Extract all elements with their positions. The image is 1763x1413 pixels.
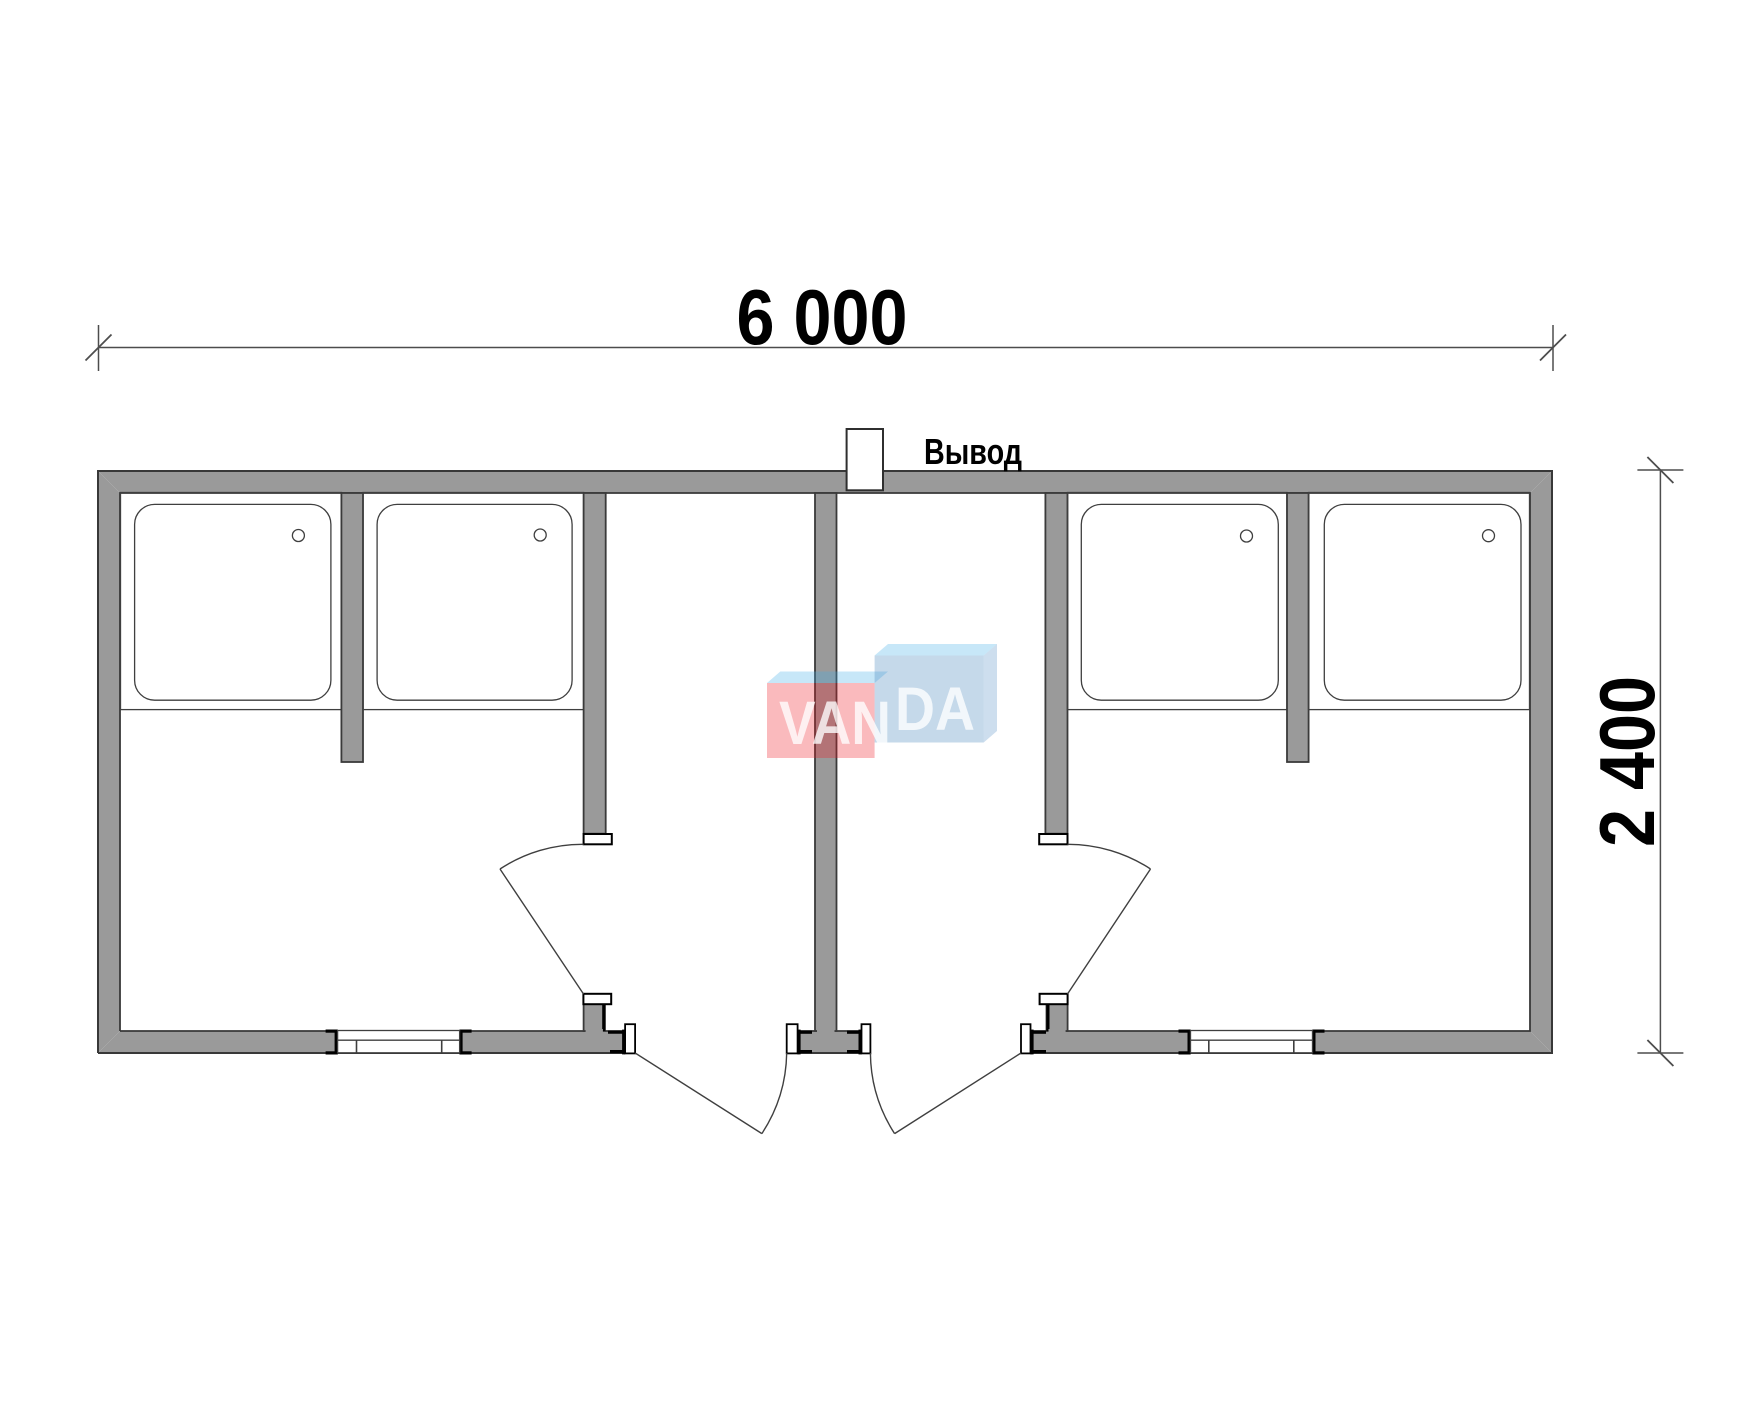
svg-text:6 000: 6 000 (737, 273, 908, 361)
svg-text:Вывод: Вывод (924, 431, 1022, 472)
svg-text:VAN: VAN (779, 689, 891, 757)
svg-text:2 400: 2 400 (1583, 676, 1671, 847)
svg-text:DA: DA (895, 675, 975, 743)
